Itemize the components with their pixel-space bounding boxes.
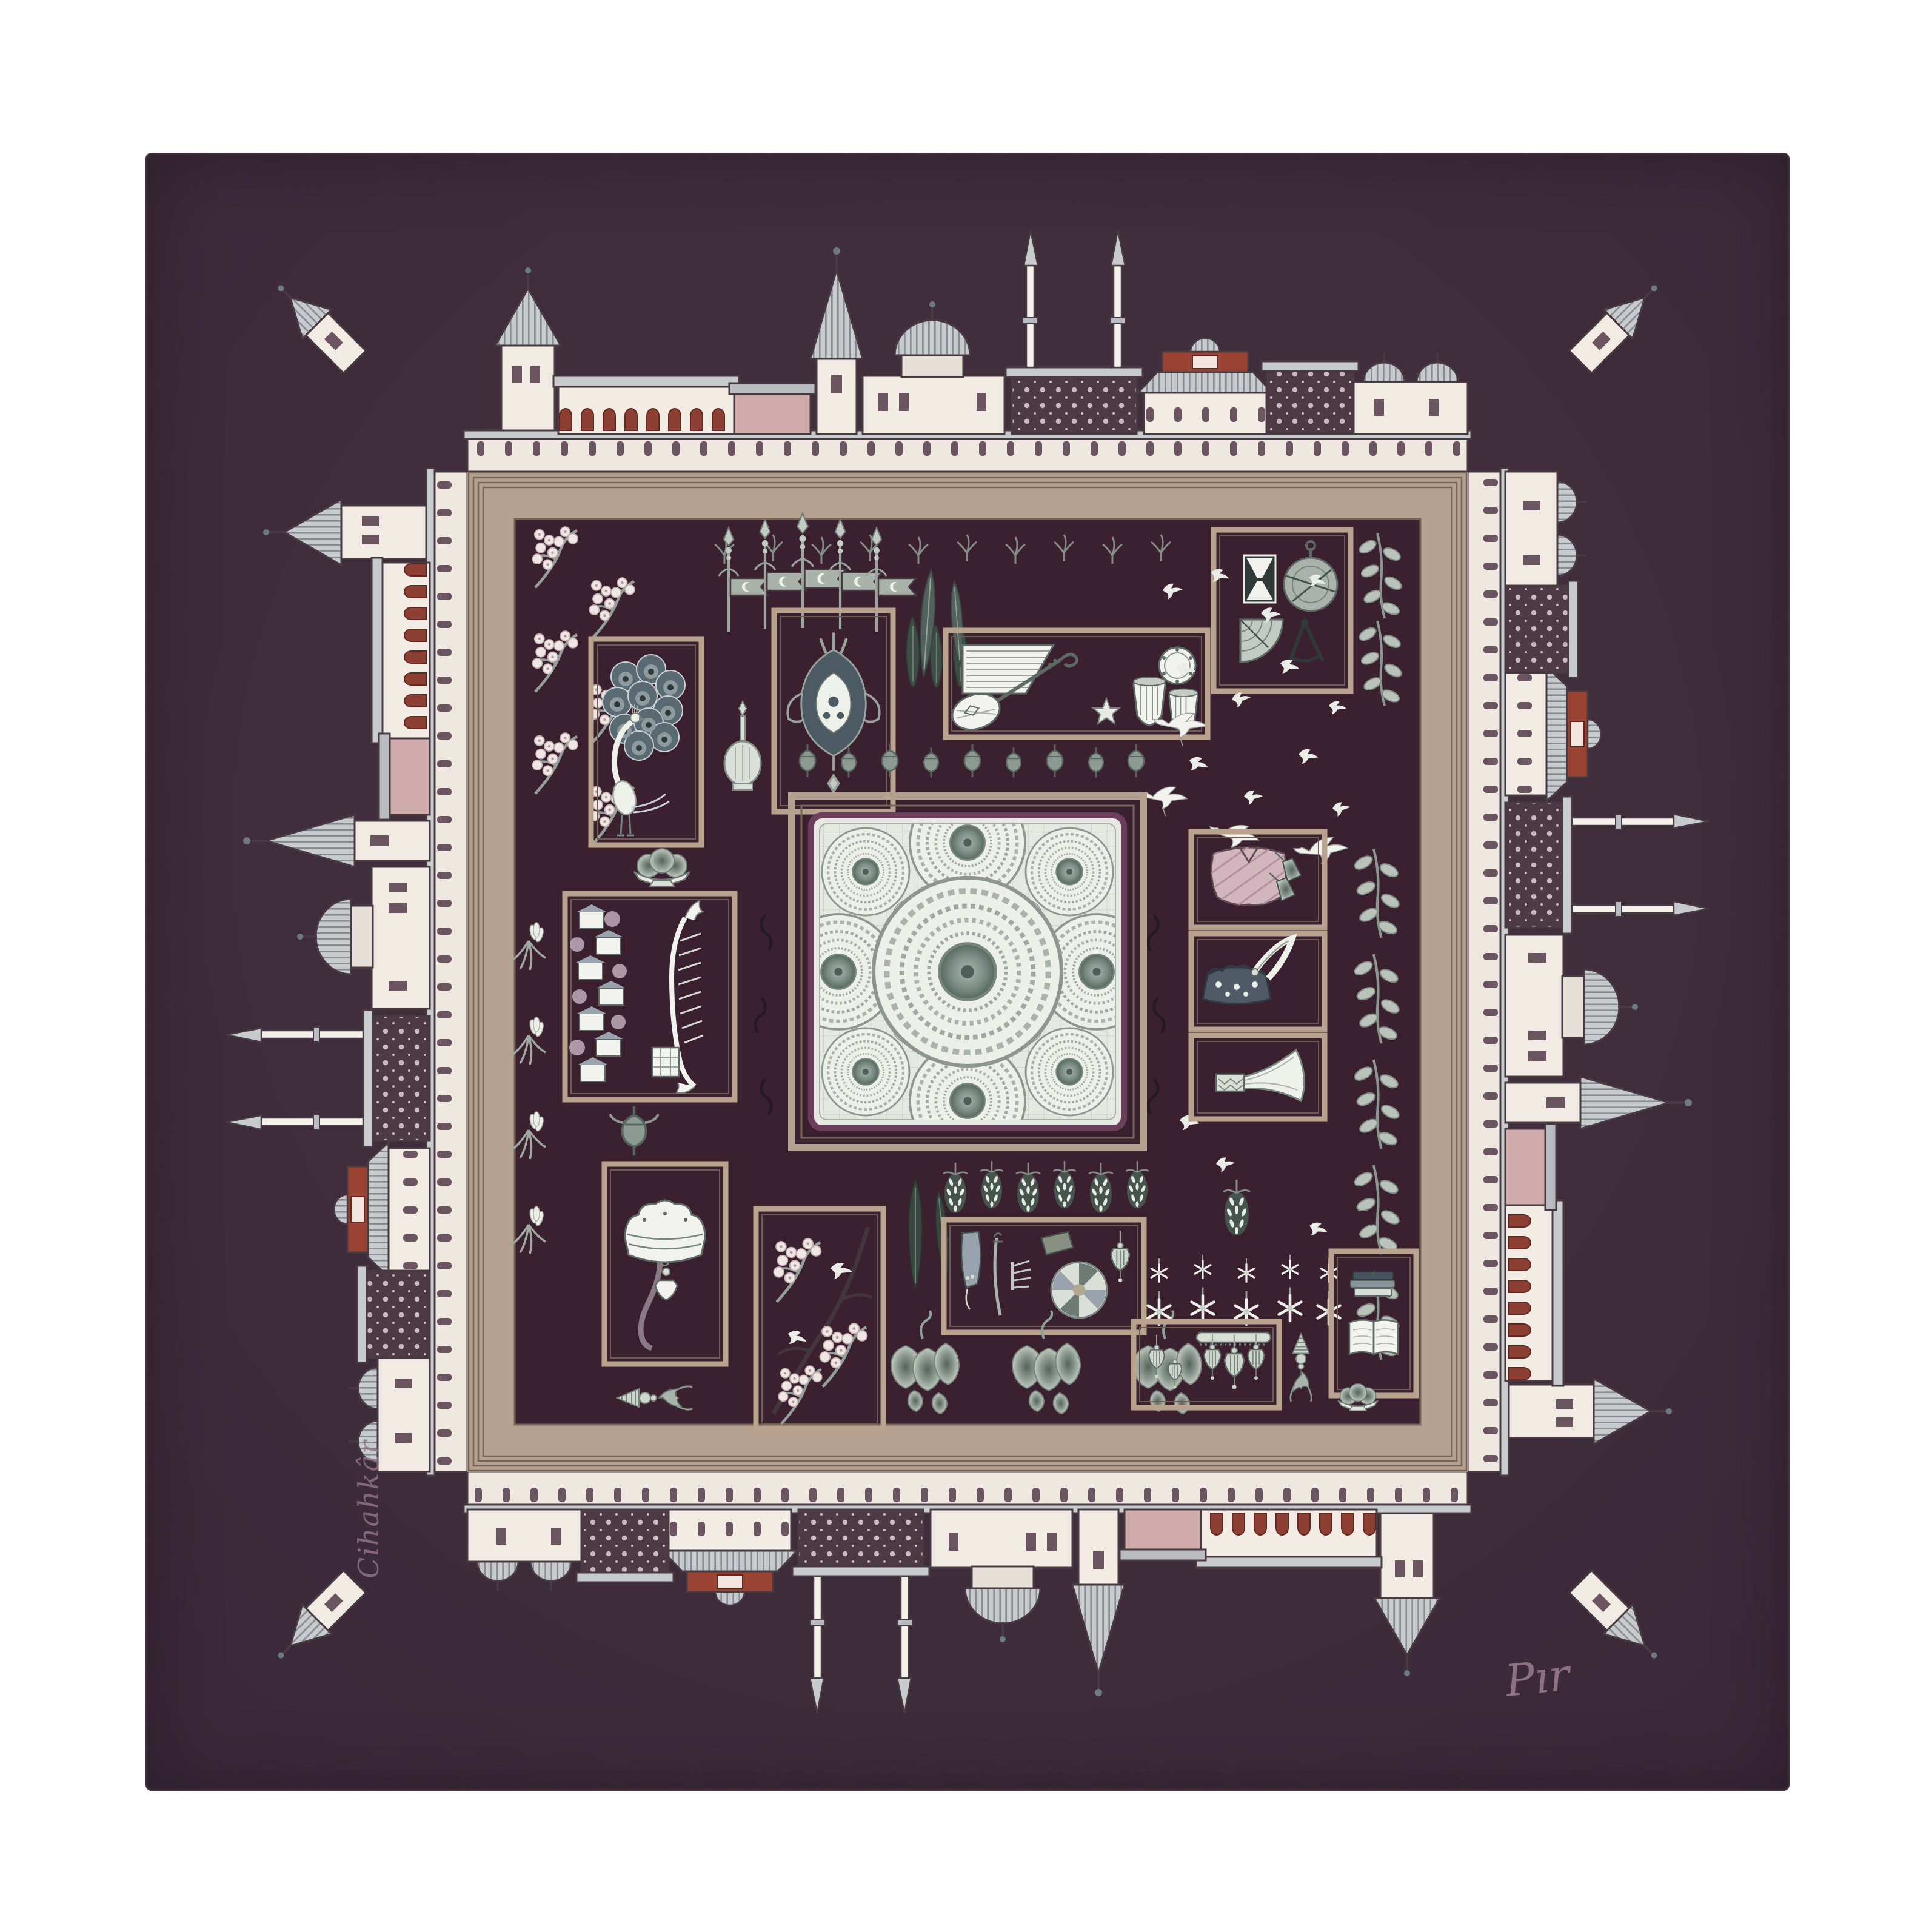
right-architecture-band [1468,468,1709,1476]
pinwheel-icon [1051,1262,1107,1318]
tambourine-icon [1159,647,1195,684]
brand-signature: Pır [1502,1649,1574,1706]
silk-scarf: Cihahkâr Pır [145,153,1790,1791]
left-architecture-band [226,468,467,1476]
central-medallion [781,785,1154,1158]
top-architecture-band [464,230,1471,472]
bottom-architecture-band [464,1472,1471,1713]
scarf-print-svg: Cihahkâr Pır [145,153,1790,1791]
product-photo: Cihahkâr Pır [0,0,1932,1932]
hourglass-icon [1244,555,1275,603]
dome-mosaic-icon [781,785,1154,1158]
artist-signature-vertical: Cihahkâr [352,1439,385,1579]
book-stack-icon [1351,1272,1394,1296]
open-book-icon [1349,1320,1398,1354]
